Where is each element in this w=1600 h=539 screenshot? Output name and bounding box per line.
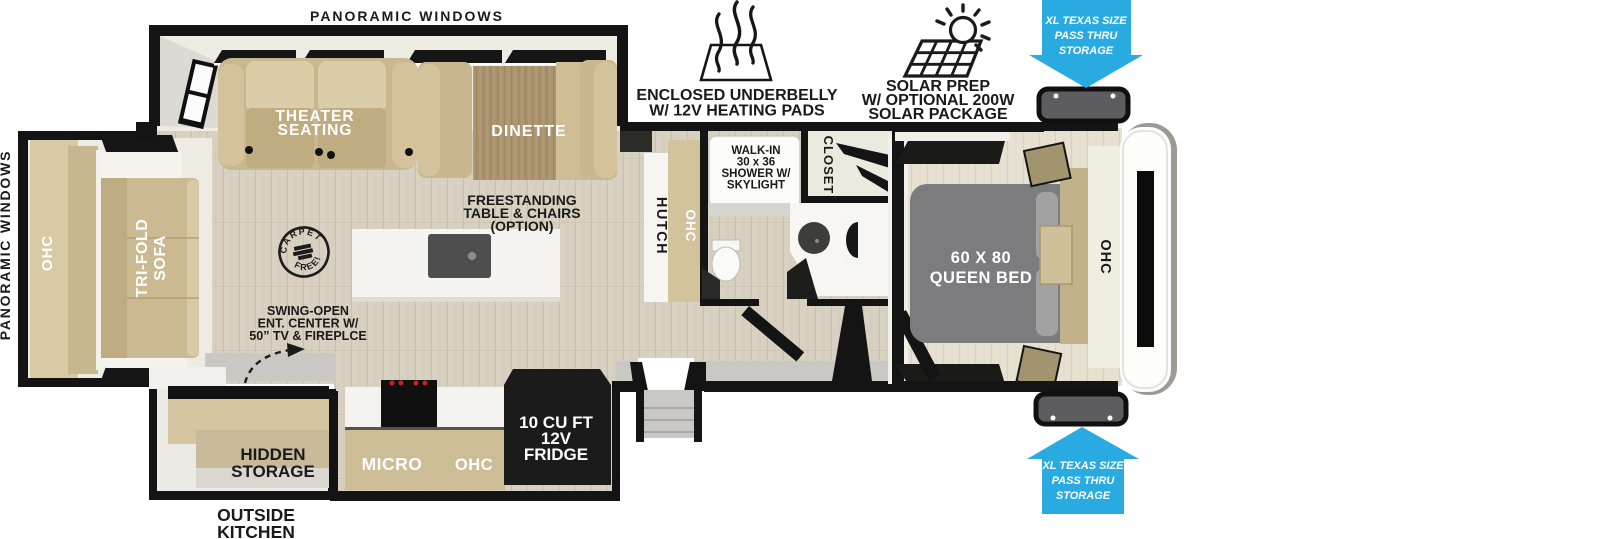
svg-text:(OPTION): (OPTION): [491, 218, 554, 234]
svg-text:HUTCH: HUTCH: [653, 197, 669, 255]
svg-text:CLOSET: CLOSET: [821, 136, 836, 195]
svg-text:DINETTE: DINETTE: [491, 123, 566, 140]
svg-text:PASS THRU: PASS THRU: [1055, 30, 1119, 42]
svg-text:MICRO: MICRO: [362, 454, 423, 474]
svg-text:PASS THRU: PASS THRU: [1052, 475, 1116, 487]
svg-text:OHC: OHC: [455, 456, 493, 474]
svg-text:WALK-IN: WALK-IN: [731, 145, 780, 157]
svg-text:ENCLOSED UNDERBELLY: ENCLOSED UNDERBELLY: [636, 87, 838, 104]
svg-text:SKYLIGHT: SKYLIGHT: [727, 180, 785, 192]
svg-text:STORAGE: STORAGE: [1059, 45, 1114, 57]
svg-text:50” TV & FIREPLCE: 50” TV & FIREPLCE: [249, 329, 366, 343]
svg-text:STORAGE: STORAGE: [231, 462, 315, 481]
svg-text:PANORAMIC WINDOWS: PANORAMIC WINDOWS: [0, 150, 13, 341]
svg-text:QUEEN BED: QUEEN BED: [930, 269, 1033, 287]
svg-text:30 x 36: 30 x 36: [737, 157, 775, 169]
svg-text:STORAGE: STORAGE: [1056, 490, 1111, 502]
svg-text:W/ 12V HEATING PADS: W/ 12V HEATING PADS: [649, 103, 825, 120]
svg-text:60 X 80: 60 X 80: [951, 249, 1011, 267]
svg-text:FRIDGE: FRIDGE: [524, 445, 588, 464]
svg-text:KITCHEN: KITCHEN: [217, 522, 295, 539]
svg-text:SOFA: SOFA: [152, 235, 169, 281]
svg-text:XL TEXAS SIZE: XL TEXAS SIZE: [1041, 460, 1124, 472]
svg-text:PANORAMIC WINDOWS: PANORAMIC WINDOWS: [310, 8, 504, 24]
svg-text:XL TEXAS SIZE: XL TEXAS SIZE: [1044, 15, 1127, 27]
svg-text:TRI-FOLD: TRI-FOLD: [134, 219, 151, 298]
svg-text:SOLAR PACKAGE: SOLAR PACKAGE: [868, 106, 1008, 123]
svg-text:OHC: OHC: [683, 210, 698, 243]
svg-text:OHC: OHC: [1097, 239, 1113, 274]
svg-text:OHC: OHC: [39, 235, 56, 271]
svg-text:SHOWER W/: SHOWER W/: [722, 168, 792, 180]
svg-text:SEATING: SEATING: [278, 122, 353, 139]
